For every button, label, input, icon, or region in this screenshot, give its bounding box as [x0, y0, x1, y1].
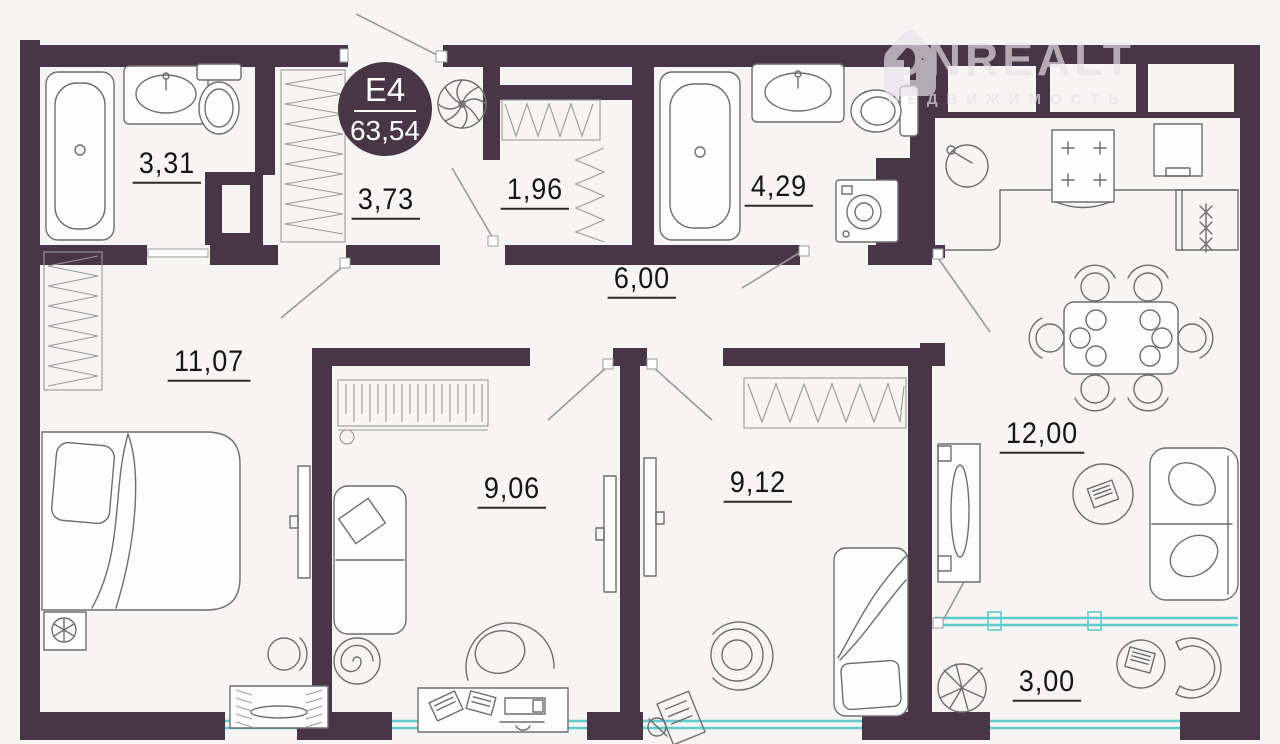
wardrobe-icon — [744, 378, 906, 428]
shelf-rack-icon — [502, 100, 604, 242]
tv-stand-icon — [938, 444, 980, 582]
nightstand-icon — [44, 612, 86, 650]
room-2-door — [647, 359, 712, 420]
sofa-icon — [1150, 448, 1238, 600]
area-label-storage: 1,96 — [501, 175, 570, 210]
unit-number: Е4 — [365, 73, 405, 106]
area-label-room-2: 9,12 — [724, 468, 793, 503]
area-label-bathroom-small: 3,31 — [133, 149, 202, 184]
coffee-table-icon — [1073, 464, 1133, 524]
wardrobe-icon — [281, 70, 345, 242]
desk-icon — [418, 688, 568, 732]
room-1-door — [548, 359, 613, 420]
storage-fixtures — [502, 100, 604, 242]
single-bed-icon — [834, 548, 908, 716]
area-label-room-1: 9,06 — [478, 474, 547, 509]
kitchen-fixtures — [938, 124, 1238, 600]
bedroom-door — [148, 249, 208, 257]
dresser-icon — [230, 686, 328, 728]
bathroom-large-fixtures — [660, 64, 918, 242]
kitchen-door — [933, 249, 990, 332]
wardrobe-icon — [44, 252, 102, 390]
rug-icon — [334, 638, 380, 684]
bathtub-icon — [660, 72, 740, 240]
tall-cabinet-icon — [1176, 190, 1238, 252]
toilet-icon — [851, 86, 918, 136]
fridge-icon — [1154, 124, 1202, 176]
storage-door — [452, 168, 498, 246]
sofa-icon — [334, 486, 406, 634]
office-chair-icon — [711, 622, 773, 690]
washing-machine-icon — [836, 180, 898, 242]
bedroom-fixtures — [42, 252, 328, 728]
open-wardrobe-icon — [338, 380, 488, 444]
double-bed-icon — [42, 432, 240, 610]
entrance-door — [340, 14, 447, 62]
room-2-fixtures — [644, 378, 908, 744]
tv-icon — [644, 458, 664, 576]
closet-door — [281, 258, 350, 318]
fan-icon — [438, 80, 486, 128]
chair-icon — [268, 638, 307, 670]
sink-icon — [124, 66, 208, 124]
area-label-hallway: 6,00 — [608, 264, 677, 299]
room-1-fixtures — [334, 380, 616, 732]
tv-icon — [596, 476, 616, 592]
tv-icon — [290, 466, 310, 578]
area-label-closet: 3,73 — [352, 185, 421, 220]
dining-table-icon — [1064, 302, 1178, 374]
kitchen-sink-icon — [946, 145, 988, 187]
area-label-kitchen-living: 12,00 — [1000, 419, 1085, 454]
floor-plan: 3,31 3,73 1,96 6,00 4,29 11,07 9,06 9,12… — [0, 0, 1280, 744]
closet-fixtures — [281, 70, 345, 242]
area-label-balcony: 3,00 — [1013, 667, 1082, 702]
area-label-bedroom: 11,07 — [168, 347, 251, 382]
sink-icon — [752, 64, 844, 122]
toilet-icon — [197, 64, 241, 134]
unit-total-area: 63,54 — [350, 117, 420, 145]
unit-badge: Е4 63,54 — [338, 62, 432, 156]
area-label-bathroom-large: 4,29 — [745, 172, 814, 207]
badge-divider — [354, 110, 416, 112]
bathtub-icon — [46, 72, 114, 240]
balcony-table-icon — [1117, 640, 1165, 688]
plant-icon — [938, 664, 986, 712]
stove-icon — [1052, 130, 1114, 208]
office-chair-icon — [466, 623, 554, 680]
balcony-chair-icon — [1176, 638, 1221, 698]
